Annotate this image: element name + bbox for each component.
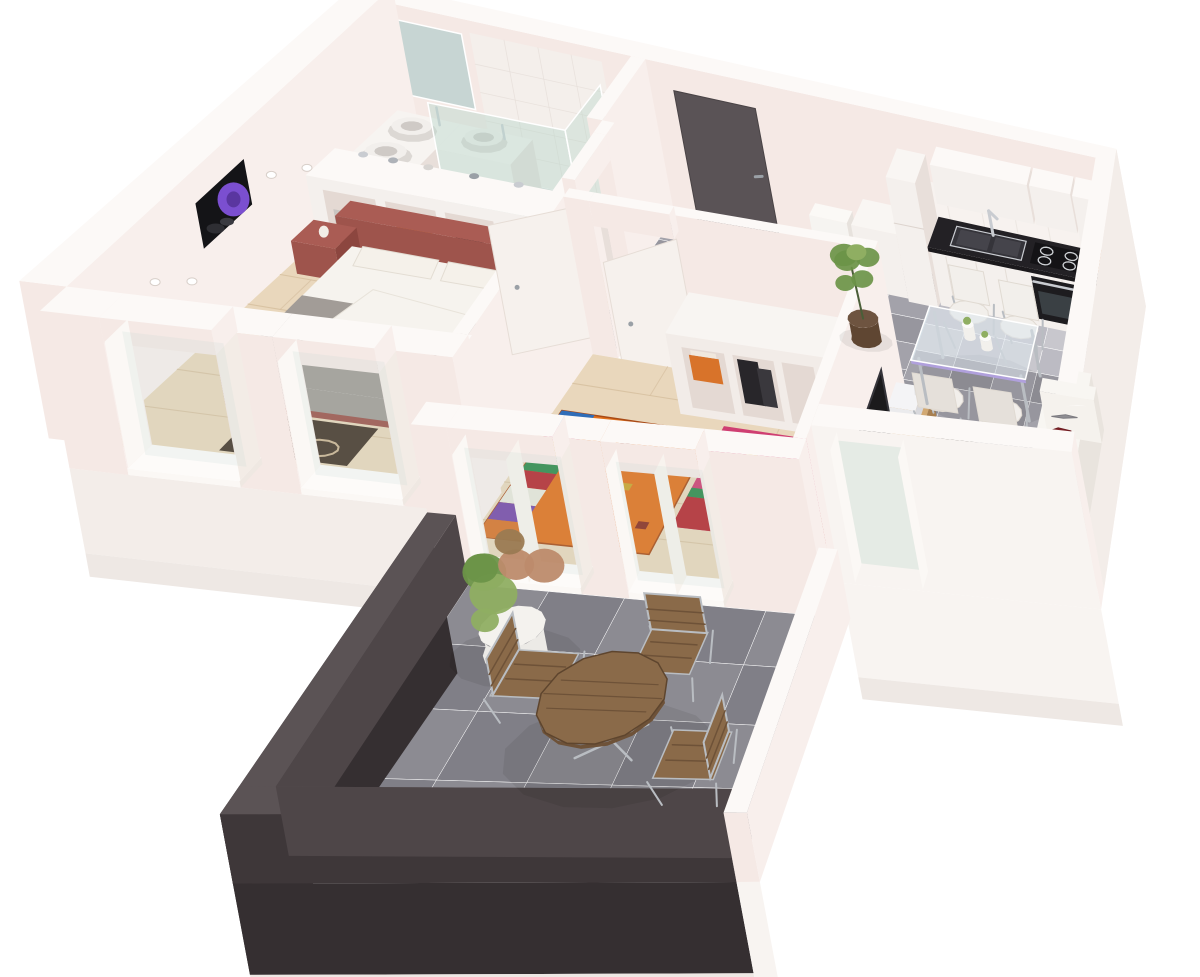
apartment-3d-floor-plan xyxy=(0,0,1200,977)
floor-plan-canvas xyxy=(0,0,1200,977)
living-south-wall xyxy=(811,404,1123,726)
south-parapet xyxy=(220,786,758,977)
